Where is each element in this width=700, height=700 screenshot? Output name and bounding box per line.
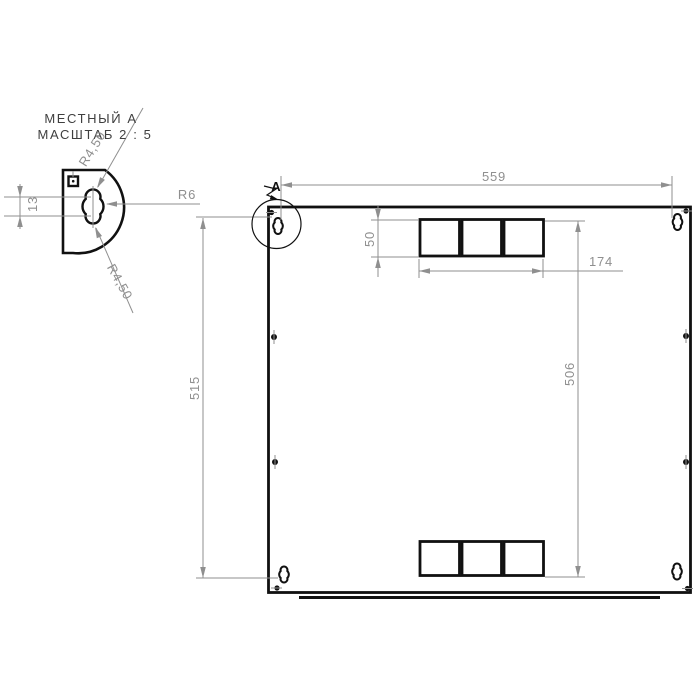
dimension-50-label: 50 <box>362 231 377 247</box>
vent-slot <box>504 220 544 257</box>
radius-r6-label: R6 <box>178 187 196 202</box>
main-panel-view <box>269 207 691 598</box>
arrowhead <box>270 195 279 200</box>
detail-marker-label: A <box>271 179 281 194</box>
vent-slot <box>420 220 460 257</box>
radius-bottom-label: R4,50 <box>104 261 136 302</box>
detail-view-title: МЕСТНЫЙ А <box>44 111 137 126</box>
arrowhead <box>281 182 292 188</box>
dimension-515-label: 515 <box>187 376 202 400</box>
dimension-174-label: 174 <box>589 254 613 269</box>
vent-slot <box>420 542 460 576</box>
dimension-559-label: 559 <box>482 169 506 184</box>
arrowhead <box>17 216 23 227</box>
vent-slots-top-row <box>420 220 544 257</box>
detail-square-hole-center <box>72 180 75 183</box>
keyhole-top-right <box>673 214 683 230</box>
keyhole-bottom-left <box>279 567 289 583</box>
arrowhead <box>200 218 206 229</box>
dimension-506-label: 506 <box>562 362 577 386</box>
panel-outline <box>269 207 691 593</box>
arrowhead <box>661 182 672 188</box>
arrowhead <box>17 186 23 197</box>
technical-drawing-page: МЕСТНЫЙ А МАСШТАБ 2 : 5 A 559 515 50 174… <box>0 0 700 700</box>
vent-slots-bottom-row <box>420 542 544 576</box>
dimension-13-label: 13 <box>25 196 40 212</box>
vent-slot <box>462 220 502 257</box>
keyhole-bottom-right <box>672 564 682 580</box>
arrowhead <box>200 567 206 578</box>
panel-engineering-drawing: МЕСТНЫЙ А МАСШТАБ 2 : 5 A 559 515 50 174… <box>0 0 700 700</box>
keyhole-top-left <box>273 218 283 234</box>
vent-slot <box>504 542 544 576</box>
vent-slot <box>462 542 502 576</box>
